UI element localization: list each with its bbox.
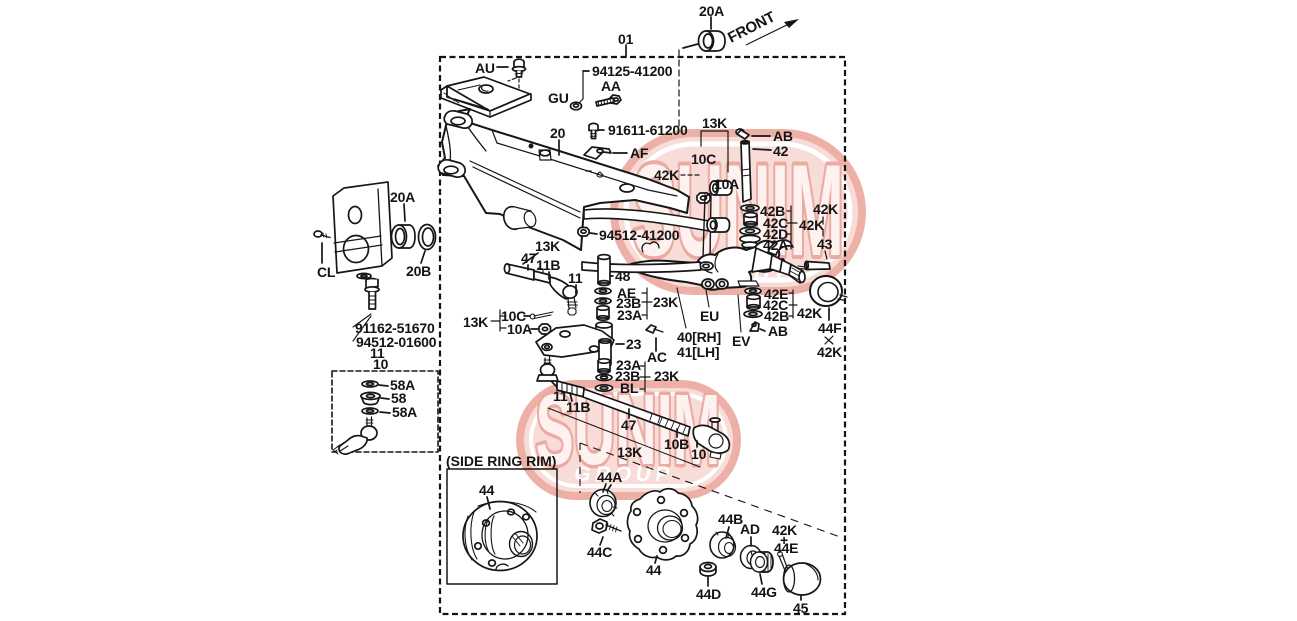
svg-text:10A: 10A — [714, 176, 739, 192]
svg-text:AD: AD — [740, 521, 760, 537]
svg-text:11B: 11B — [536, 257, 560, 273]
svg-text:44: 44 — [646, 562, 662, 578]
svg-text:94512-41200: 94512-41200 — [599, 227, 680, 243]
svg-text:47: 47 — [621, 417, 637, 433]
svg-text:47: 47 — [521, 250, 537, 266]
svg-text:23K: 23K — [653, 294, 678, 310]
svg-text:23A: 23A — [617, 307, 642, 323]
svg-text:AC: AC — [647, 349, 667, 365]
svg-text:42K: 42K — [799, 217, 824, 233]
svg-text:AF: AF — [630, 145, 649, 161]
svg-text:BL: BL — [620, 380, 639, 396]
svg-text:44C: 44C — [587, 544, 612, 560]
svg-text:42K: 42K — [813, 201, 838, 217]
svg-text:44E: 44E — [774, 540, 798, 556]
svg-text:20A: 20A — [390, 189, 415, 205]
svg-text:13K: 13K — [702, 115, 727, 131]
svg-text:EV: EV — [732, 333, 751, 349]
svg-text:AA: AA — [601, 78, 621, 94]
svg-text:44F: 44F — [818, 320, 842, 336]
svg-text:45: 45 — [793, 600, 809, 616]
svg-text:AU: AU — [475, 60, 495, 76]
svg-text:42B: 42B — [764, 308, 789, 324]
svg-text:10B: 10B — [664, 436, 689, 452]
svg-text:20: 20 — [550, 125, 566, 141]
svg-text:10A: 10A — [507, 321, 532, 337]
svg-text:AB: AB — [773, 128, 793, 144]
svg-text:42K: 42K — [817, 344, 842, 360]
svg-text:44: 44 — [479, 482, 495, 498]
svg-text:42K: 42K — [797, 305, 822, 321]
svg-text:(SIDE RING RIM): (SIDE RING RIM) — [446, 453, 556, 469]
svg-text:44A: 44A — [597, 469, 622, 485]
svg-text:11: 11 — [568, 270, 583, 286]
svg-text:AB: AB — [768, 323, 788, 339]
svg-text:10: 10 — [691, 446, 707, 462]
svg-text:13K: 13K — [617, 444, 642, 460]
svg-text:01: 01 — [618, 31, 634, 47]
svg-text:EU: EU — [700, 308, 719, 324]
svg-text:40[RH]: 40[RH] — [677, 329, 721, 345]
svg-text:94125-41200: 94125-41200 — [592, 63, 673, 79]
svg-text:42K: 42K — [654, 167, 679, 183]
svg-text:41[LH]: 41[LH] — [677, 344, 719, 360]
svg-text:48: 48 — [615, 268, 631, 284]
svg-text:10: 10 — [373, 356, 389, 372]
svg-text:13K: 13K — [535, 238, 560, 254]
svg-text:10C: 10C — [691, 151, 716, 167]
svg-text:20B: 20B — [406, 263, 431, 279]
svg-text:44D: 44D — [696, 586, 721, 602]
svg-text:42: 42 — [773, 143, 789, 159]
svg-text:GROUP: GROUP — [574, 463, 674, 486]
svg-text:11B: 11B — [566, 399, 590, 415]
svg-text:CL: CL — [317, 264, 336, 280]
svg-text:42A: 42A — [763, 237, 788, 253]
svg-text:13K: 13K — [463, 314, 488, 330]
svg-text:91611-61200: 91611-61200 — [608, 122, 688, 138]
svg-text:58A: 58A — [392, 404, 417, 420]
svg-text:44G: 44G — [751, 584, 777, 600]
svg-text:23K: 23K — [654, 368, 679, 384]
svg-text:20A: 20A — [699, 3, 724, 19]
svg-text:94512-01600: 94512-01600 — [356, 334, 437, 350]
svg-text:GU: GU — [548, 90, 569, 106]
svg-text:23: 23 — [626, 336, 642, 352]
svg-text:43: 43 — [817, 236, 833, 252]
